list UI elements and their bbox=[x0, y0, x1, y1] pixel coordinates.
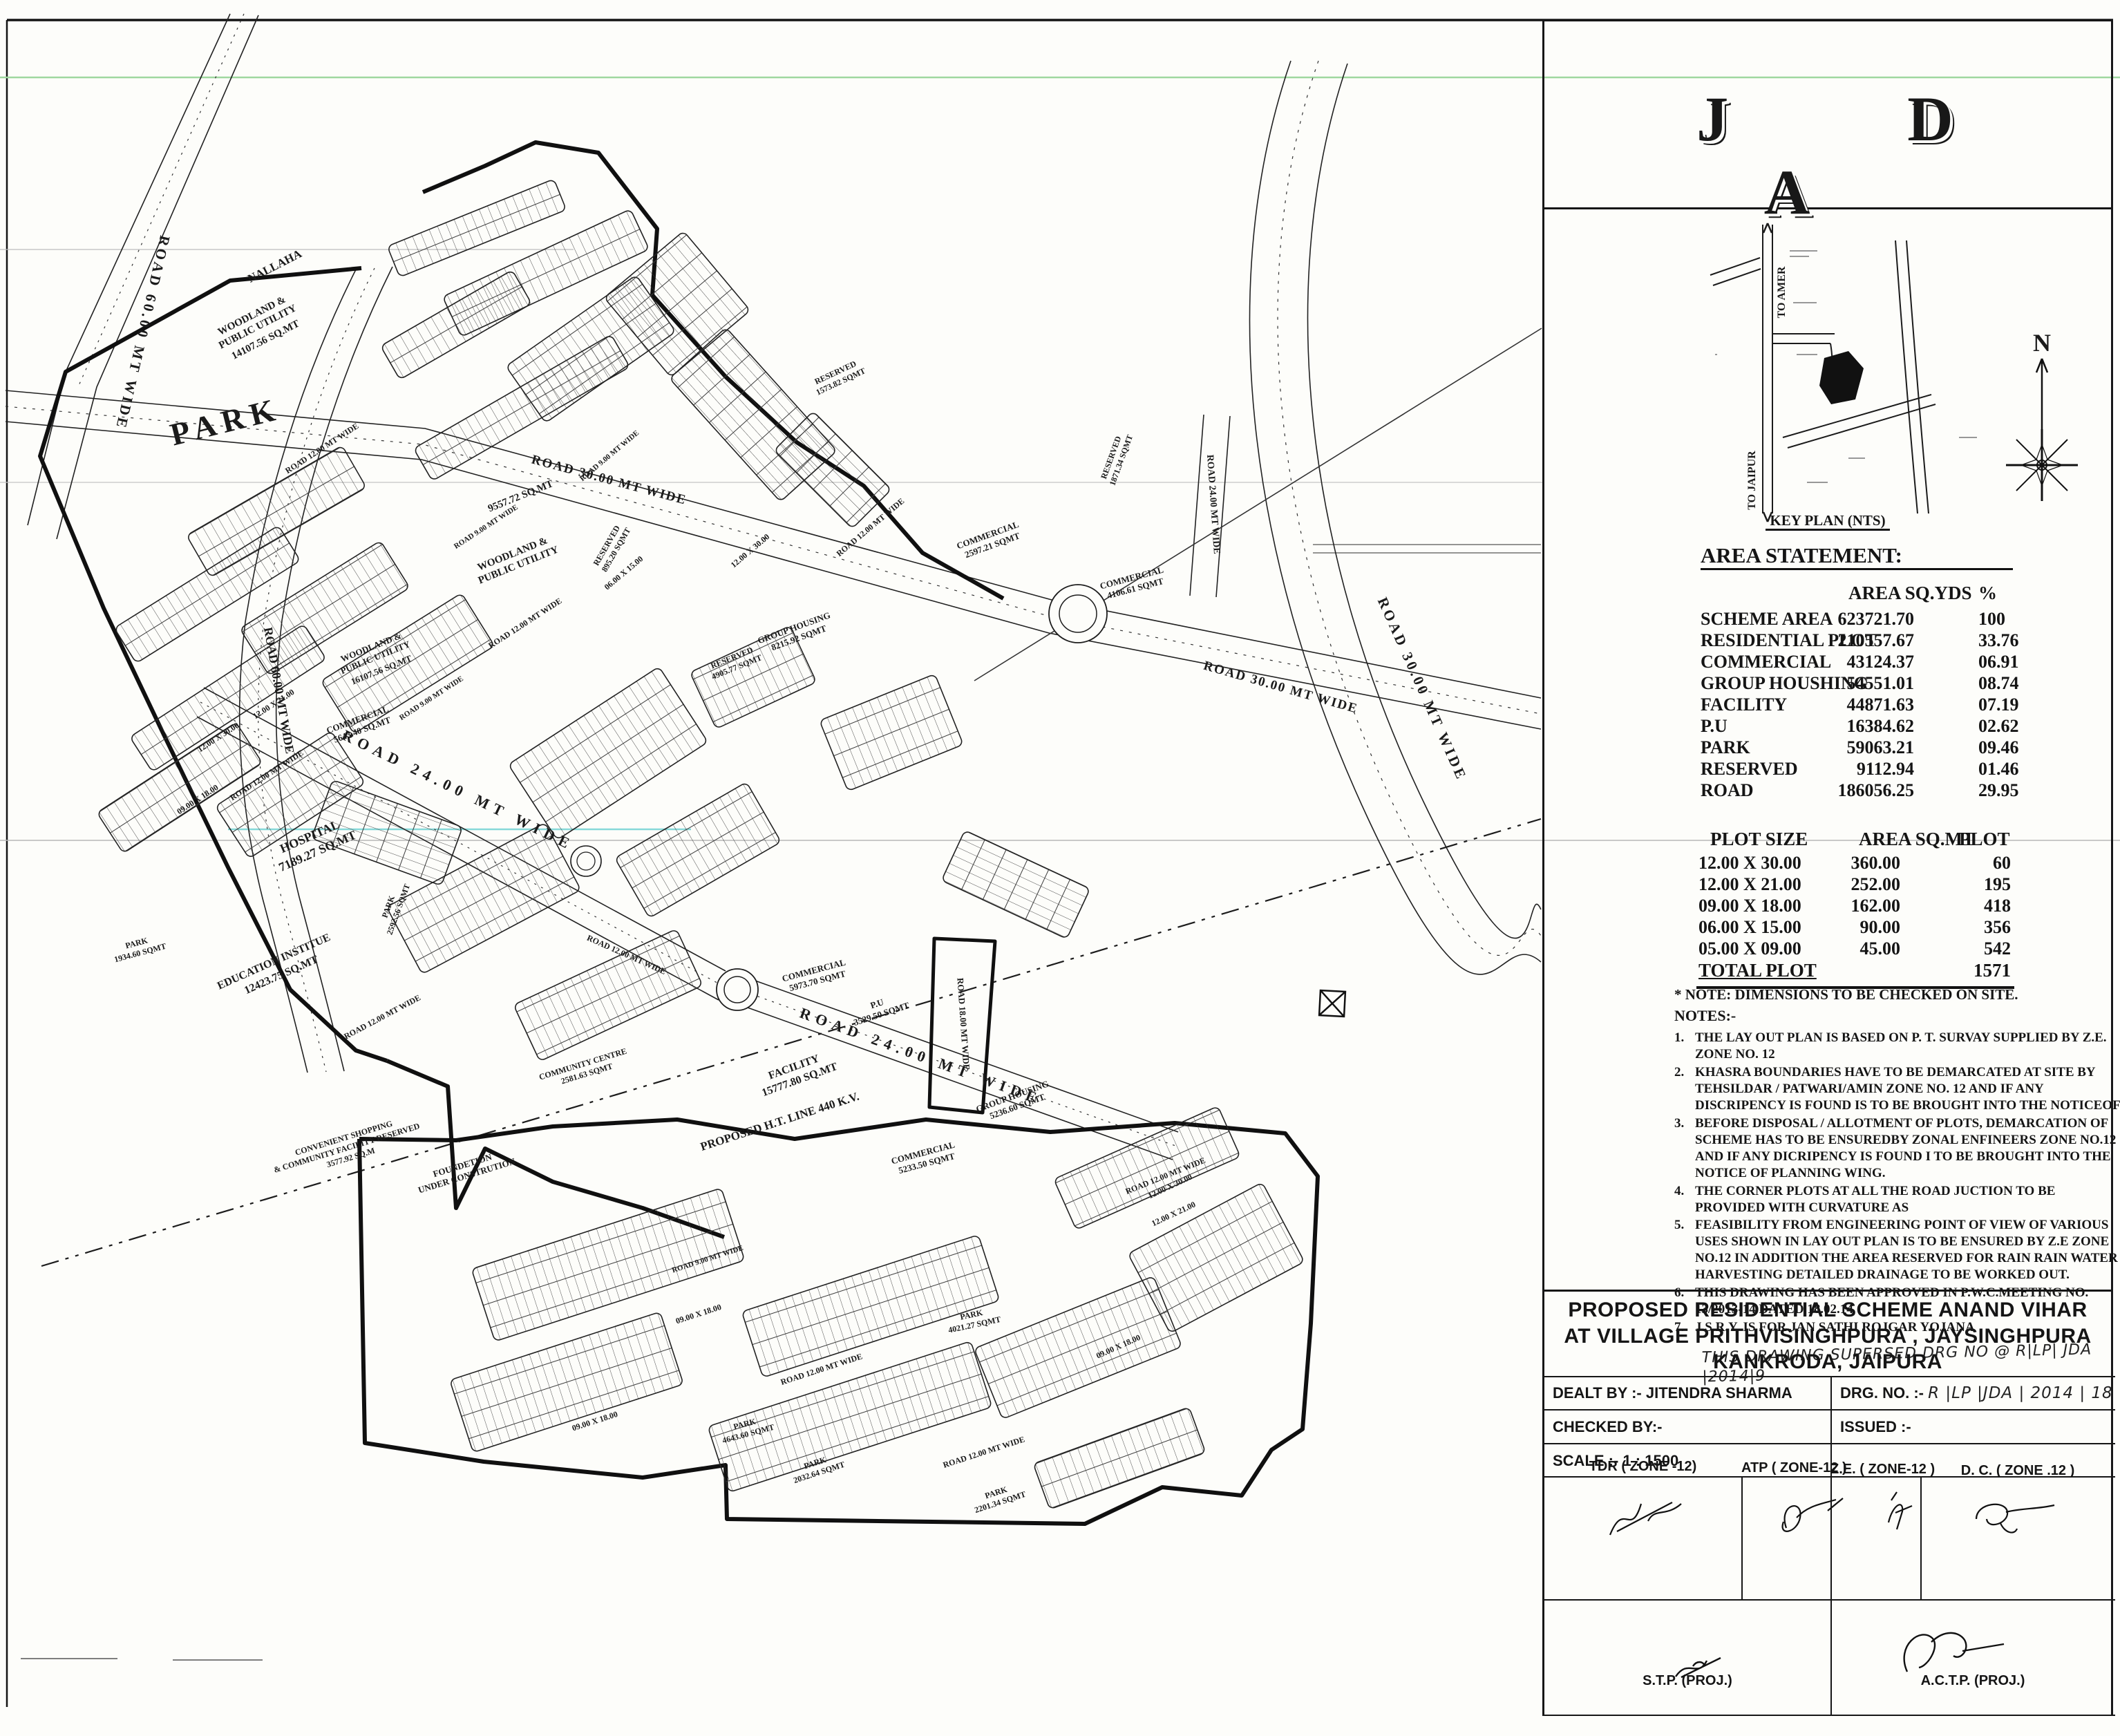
scheme-title-line3: KANKRODA, JAIPURA bbox=[1544, 1349, 2111, 1375]
road-label: ROAD 12.00 MT WIDE bbox=[342, 992, 422, 1041]
signature-dc bbox=[1952, 1490, 2070, 1549]
note-item: 2.KHASRA BOUNDARIES HAVE TO BE DEMARCATE… bbox=[1674, 1064, 2120, 1114]
scheme-title-line2: AT VILLAGE PRITHVISINGHPURA , JAYSINGHPU… bbox=[1544, 1323, 2111, 1350]
road-label: ROAD 12.00 MT WIDE bbox=[486, 596, 563, 650]
scheme-title-line1: PROPOSED RESIDENTIAL SCHEME ANAND VIHAR bbox=[1544, 1297, 2111, 1323]
reserved-label: RESERVED 1573.82 SQMT bbox=[810, 357, 867, 397]
area-statement-header: AREA SQ.YDS % bbox=[1544, 583, 2111, 604]
note-item: 4.THE CORNER PLOTS AT ALL THE ROAD JUCTI… bbox=[1674, 1183, 2120, 1216]
sig-label-dc: D. C. ( ZONE .12 ) bbox=[1920, 1463, 2115, 1479]
area-row: FACILITY44871.6307.19 bbox=[1544, 695, 2111, 716]
plot-row: 12.00 X 21.00252.00195 bbox=[1544, 874, 2111, 896]
dim-label: 09.00 X 18.00 bbox=[674, 1302, 723, 1326]
svg-text:N: N bbox=[2033, 329, 2051, 357]
plot-table-header: PLOT SIZE AREA SQ.MT PLOT bbox=[1544, 829, 2111, 850]
sig-label-tdr: TDR ( ZONE -12) bbox=[1544, 1459, 1741, 1475]
road-label: ROAD 18.00 MT WIDE bbox=[955, 977, 972, 1070]
checked-by-field: CHECKED BY:- bbox=[1553, 1418, 1662, 1436]
signature-atp bbox=[1759, 1490, 1848, 1545]
commercial-label: COMMERCIAL 4106.61 SQMT bbox=[1099, 564, 1169, 602]
convenient-shopping-label: CONVENIENT SHOPPING & COMMUNITY FACILITY… bbox=[269, 1111, 426, 1185]
area-row: GROUP HOUSHING54551.0108.74 bbox=[1544, 673, 2111, 695]
to-jaipur-label: TO JAIPUR bbox=[1746, 451, 1758, 510]
road-label: ROAD 60.00 MT WIDE bbox=[113, 234, 173, 431]
nallaha-label: NALLAHA bbox=[245, 247, 304, 285]
road-label: ROAD 30.00 MT WIDE bbox=[1374, 595, 1470, 784]
key-plan-caption: KEY PLAN (NTS) bbox=[1544, 512, 2111, 529]
road-label: ROAD 24.00 MT WIDE bbox=[1204, 454, 1222, 554]
area-row: RESIDENTIAL PLOT210557.6733.76 bbox=[1544, 630, 2111, 652]
title-block-panel: J D A TO AMER TO JAIPUR N bbox=[1542, 19, 2113, 1716]
facility-label: FACILITY 15777.80 SQ.MT bbox=[755, 1048, 839, 1099]
sig-label-actp: A.C.T.P. (PROJ.) bbox=[1830, 1673, 2115, 1689]
to-amer-label: TO AMER bbox=[1776, 266, 1788, 318]
plot-row: 09.00 X 18.00162.00418 bbox=[1544, 896, 2111, 917]
plot-row: 06.00 X 15.0090.00356 bbox=[1544, 917, 2111, 938]
key-plan: TO AMER TO JAIPUR N KEY PLAN (NTS) bbox=[1544, 209, 2111, 536]
park-label: PARK 1934.60 SQMT bbox=[111, 931, 167, 964]
jda-logo-box: J D A bbox=[1544, 21, 2111, 209]
sig-label-atp: ATP ( ZONE-12 ) bbox=[1741, 1460, 1830, 1476]
area-row: P.U16384.6202.62 bbox=[1544, 716, 2111, 737]
area-row: RESERVED9112.9401.46 bbox=[1544, 759, 2111, 780]
dim-label: 12.00 X 30.00 bbox=[729, 532, 772, 570]
plot-total-row: TOTAL PLOT 1571 bbox=[1544, 960, 2111, 981]
woodland-label: WOODLAND & PUBLIC UTILITY 14107.56 SQ.MT bbox=[211, 290, 307, 365]
note-star: * NOTE: DIMENSIONS TO BE CHECKED ON SITE… bbox=[1674, 985, 2120, 1003]
key-plan-map: TO AMER TO JAIPUR N bbox=[1544, 209, 2115, 534]
reserved-label: RESERVED 1871.34 SQMT bbox=[1097, 430, 1135, 487]
note-item: 1.THE LAY OUT PLAN IS BASED ON P. T. SUR… bbox=[1674, 1030, 2120, 1063]
drawing-sheet: ROAD 60.00 MT WIDE ROAD 60.00 MT WIDE RO… bbox=[0, 0, 2120, 1736]
park-label: PARK bbox=[167, 391, 284, 453]
area-row: COMMERCIAL43124.3706.91 bbox=[1544, 652, 2111, 673]
ht-line-label: PROPOSED H.T. LINE 440 K.V. bbox=[699, 1090, 860, 1153]
road-label: ROAD 12.00 MT WIDE bbox=[942, 1434, 1026, 1470]
sig-label-ze: Z.E. ( ZONE-12 ) bbox=[1830, 1462, 1920, 1478]
plot-row: 05.00 X 09.0045.00542 bbox=[1544, 938, 2111, 960]
road-label: ROAD 30.00 MT WIDE bbox=[1202, 659, 1359, 717]
commercial-label: COMMERCIAL 2597.21 SQMT bbox=[955, 518, 1025, 561]
area-row: SCHEME AREA623721.70100 bbox=[1544, 609, 2111, 630]
drg-no-field: DRG. NO. :- R |LP |JDA | 2014 | 18 bbox=[1840, 1384, 2113, 1402]
note-item: 3.BEFORE DISPOSAL / ALLOTMENT OF PLOTS, … bbox=[1674, 1115, 2120, 1182]
woodland-area-label: 9557.72 SQ.MT bbox=[486, 478, 555, 514]
woodland-label: WOODLAND & PUBLIC UTILITY bbox=[472, 533, 560, 587]
structure-marker bbox=[1319, 990, 1345, 1017]
sig-label-stp: S.T.P. (PROJ.) bbox=[1544, 1673, 1830, 1689]
signature-ze bbox=[1855, 1487, 1931, 1545]
pu-label: P.U 3529.50 SQMT bbox=[849, 990, 911, 1028]
dealt-by-field: DEALT BY :- JITENDRA SHARMA bbox=[1553, 1384, 1792, 1402]
jda-logo: J D A bbox=[1544, 82, 2111, 229]
park-label: PARK 2201.34 SQMT bbox=[970, 1480, 1028, 1515]
title-block-grid: DEALT BY :- JITENDRA SHARMA DRG. NO. :- … bbox=[1544, 1376, 2115, 1716]
north-arrow: N bbox=[2006, 329, 2078, 501]
note-item: 5.FEASIBILITY FROM ENGINEERING POINT OF … bbox=[1674, 1217, 2120, 1283]
area-row: PARK59063.2109.46 bbox=[1544, 737, 2111, 759]
issued-field: ISSUED :- bbox=[1840, 1418, 1911, 1436]
commercial-label: COMMERCIAL 5233.50 SQMT bbox=[890, 1139, 960, 1177]
road-label: ROAD 9.00 MT WIDE bbox=[453, 503, 520, 551]
plot-row: 12.00 X 30.00360.0060 bbox=[1544, 853, 2111, 874]
site-location-blob bbox=[1819, 351, 1864, 404]
area-row: ROAD186056.2529.95 bbox=[1544, 780, 2111, 802]
area-statement-title: AREA STATEMENT: bbox=[1701, 543, 2088, 570]
commercial-label: COMMERCIAL 5973.70 SQMT bbox=[781, 956, 851, 994]
signature-tdr bbox=[1600, 1490, 1690, 1545]
notes-heading: NOTES:- bbox=[1674, 1006, 2120, 1026]
